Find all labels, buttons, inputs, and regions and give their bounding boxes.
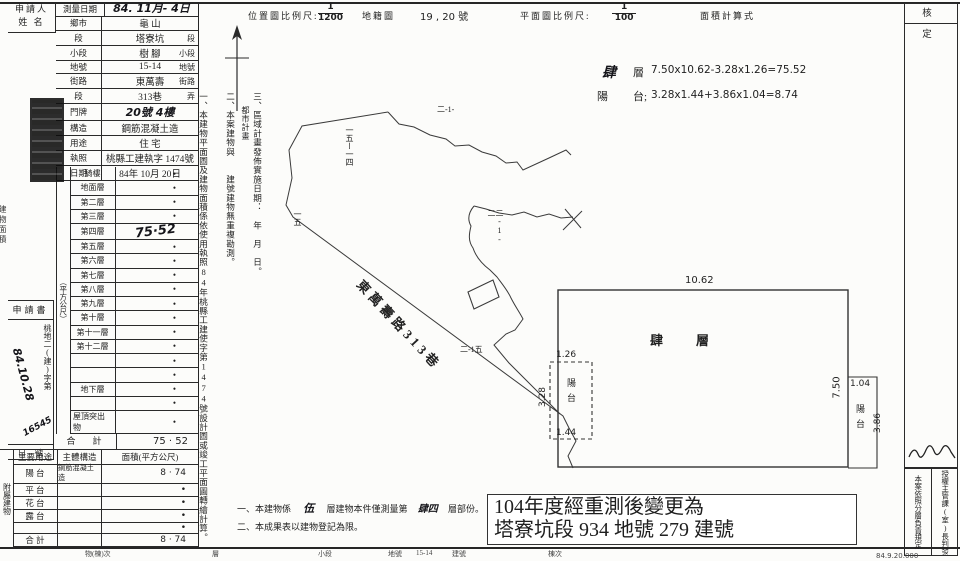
location-row: 執照桃縣工建執字 1474號: [56, 151, 198, 166]
annex-use: [13, 523, 58, 533]
row-value: 龜 山: [102, 16, 198, 30]
floor-row: 第十二層•: [70, 340, 198, 354]
floor-row: 屋頂突出物•: [70, 411, 198, 434]
dim-balcony-left-top: 1.26: [556, 350, 576, 360]
bottom-note-1-measured-hw: 肆四: [410, 504, 446, 515]
floor-area-group-label: 建物面積: [0, 205, 6, 305]
annex-header-area: 面積(平方公尺): [102, 450, 198, 464]
annex-structure: 鋼筋混凝土造: [58, 463, 102, 483]
location-row: 用途住 宅: [56, 136, 198, 151]
annex-area: 8 · 74: [102, 535, 198, 545]
floor-value: •: [116, 417, 198, 427]
floor-value-text: •: [173, 169, 176, 179]
value-text: 20號 4樓: [126, 104, 175, 120]
plan-scale-denominator: 100: [612, 14, 636, 24]
bottom-note-1-floors-hw: 伍: [293, 502, 324, 515]
floor-value: •: [116, 169, 198, 179]
resurvey-remark-box: 104年度經重測後變更為 塔寮坑段 934 地號 279 建號: [487, 494, 857, 545]
floor-label: 騎樓: [70, 167, 116, 180]
floor-value: •: [116, 341, 198, 351]
annex-structure: [58, 484, 102, 496]
floor-label: [70, 368, 116, 381]
floor-value-text: •: [173, 398, 176, 408]
value-text: 龜 山: [139, 16, 160, 30]
annex-row: 合 計8 · 74: [13, 534, 198, 547]
floor-value: •: [116, 313, 198, 323]
cadastral-map-label: 地籍圖: [362, 9, 395, 22]
dim-balcony-right-side: 3.86: [873, 413, 883, 433]
formula-floor-expression: 7.50x10.62-3.28x1.26=75.52: [651, 64, 806, 76]
value-text: 住 宅: [139, 136, 160, 150]
resurvey-remark-line2: 塔寮坑段 934 地號 279 建號: [494, 519, 850, 542]
parcel-label-2-15: 二-1五: [460, 344, 483, 355]
row-label: 街路: [56, 74, 102, 88]
floor-label: 第七層: [70, 269, 116, 282]
footer-strip: 物(棟)次層小段地號15-14建號棟次: [0, 549, 960, 561]
floor-value: •: [116, 384, 198, 394]
value-suffix: 弄: [187, 91, 195, 102]
value-text: 15-14: [139, 62, 161, 72]
location-row: 小段樹 腳小段: [56, 46, 198, 61]
row-label: 鄉市: [56, 16, 102, 30]
survey-date-label: 測量日期: [56, 3, 105, 16]
annex-use: 平 台: [13, 484, 58, 496]
floor-value-text: •: [173, 299, 176, 309]
row-value: 樹 腳小段: [102, 46, 198, 60]
floor-value-text: •: [173, 270, 176, 280]
floor-value-text: •: [173, 197, 176, 207]
floor-row: 第八層•: [70, 283, 198, 297]
authority-note-right: 授權主管課(室)長判發: [932, 469, 958, 555]
balcony-right-label: 陽台: [855, 404, 864, 448]
floor-row: 第四層75·52: [70, 224, 198, 240]
floor-row: •: [70, 397, 198, 411]
approval-signature: [907, 439, 957, 465]
footer-fragment: 物(棟)次: [85, 549, 111, 559]
annex-row: 花 台•: [13, 497, 198, 510]
location-scale-denominator: 1200: [318, 14, 343, 24]
floor-value: •: [116, 211, 198, 221]
floor-label: 第六層: [70, 254, 116, 267]
dim-balcony-left-side: 3.28: [538, 387, 548, 407]
cadastral-sheet-number: 19 , 20 號: [420, 8, 468, 23]
room-label: 肆 層: [650, 330, 719, 349]
floor-total-label: 合 計: [56, 434, 117, 449]
value-suffix: 街路: [179, 76, 195, 87]
value-suffix: 段: [187, 33, 195, 44]
official-stamp: [30, 98, 64, 182]
floor-rows: 騎樓•地面層•第二層•第三層•第四層75·52第五層•第六層•第七層•第八層•第…: [70, 167, 198, 434]
floor-row: 騎樓•: [70, 167, 198, 181]
value-text: 東萬壽: [136, 74, 165, 88]
floor-plan-drawing: [535, 270, 885, 478]
location-row: 地號15-14地號: [56, 61, 198, 74]
floor-row: 第七層•: [70, 269, 198, 283]
floor-value-text: •: [173, 417, 176, 427]
annex-structure: [58, 497, 102, 509]
floor-value: 75·52: [116, 224, 198, 239]
row-value: 15-14地號: [102, 62, 198, 72]
area-unit-label: （平方公尺）: [56, 167, 71, 434]
value-text: 鋼筋混凝土造: [121, 121, 178, 135]
floor-label: [70, 397, 116, 410]
floor-total-row: 合 計 75 · 52: [56, 434, 198, 450]
annex-area: •: [102, 485, 198, 495]
bottom-note-1c: 層建物本件僅測量第: [327, 504, 408, 514]
annex-structure: [58, 534, 102, 546]
bottom-note-1e: 層部份。: [448, 504, 484, 514]
plan-scale-fraction: 1 100: [612, 3, 636, 24]
annex-row: 平 台•: [13, 484, 198, 497]
floor-label: 屋頂突出物: [70, 411, 116, 433]
value-suffix: 地號: [179, 62, 195, 73]
floor-value: •: [116, 183, 198, 193]
floor-value-text: •: [173, 183, 176, 193]
floor-value: •: [116, 270, 198, 280]
area-calc-label: 面積計算式: [700, 9, 755, 22]
approval-header: 核 定: [904, 3, 958, 24]
annex-structure: [58, 510, 102, 522]
annex-use: 露 台: [13, 510, 58, 522]
row-value: 東萬壽街路: [102, 74, 198, 88]
floor-value: •: [116, 256, 198, 266]
bottom-note-1: 一、本建物係 伍 層建物本件僅測量第 肆四 層部份。: [237, 500, 484, 516]
floor-row: 第六層•: [70, 254, 198, 268]
footer-fragment: 小段: [318, 549, 332, 559]
floor-label: 地面層: [70, 181, 116, 194]
floor-value-text: •: [173, 242, 176, 252]
building-survey-document: 申請人 姓 名 建物面積 申請書 桃地二(建)字第 84.10.28 16545…: [0, 0, 960, 561]
floor-label: 第十二層: [70, 340, 116, 353]
parcel-label-2-1-2: 二-1-二: [487, 209, 503, 247]
floor-value-text: •: [173, 313, 176, 323]
row-value: 313巷弄: [102, 89, 198, 103]
floor-label: 第九層: [70, 297, 116, 310]
parcel-label-15: 一五: [293, 210, 301, 230]
floor-total-value: 75 · 52: [117, 434, 198, 449]
formula-balcony-word: 台;: [633, 88, 647, 104]
location-rows: 鄉市龜 山段塔寮坑段小段樹 腳小段地號15-14地號街路東萬壽街路段313巷弄門…: [56, 16, 198, 167]
annex-area: 8 · 74: [102, 468, 198, 478]
location-scale-label: 位置圖比例尺:: [248, 9, 319, 22]
location-row: 段塔寮坑段: [56, 31, 198, 46]
plan-scale-label: 平面圖比例尺:: [520, 9, 591, 22]
annex-use: 陽 台: [13, 463, 58, 483]
row-value: 桃縣工建執字 1474號: [102, 151, 198, 165]
footer-fragment: 15-14: [416, 549, 432, 557]
note-1: 一、本建物平面圖及建物面積係依使用執照84年桃縣工建使字第1474號設計圖或竣工…: [199, 92, 208, 550]
floor-row: 第十層•: [70, 311, 198, 325]
balcony-left-label: 陽台: [566, 378, 575, 422]
footer-fragment: 層: [212, 549, 219, 559]
floor-label: 第三層: [70, 210, 116, 223]
annex-structure: [58, 523, 102, 533]
annex-header-structure: 主體構造: [58, 450, 102, 464]
value-text: 樹 腳: [139, 46, 160, 60]
floor-value-text: •: [173, 256, 176, 266]
location-row: 構造鋼筋混凝土造: [56, 121, 198, 136]
row-label: 段: [56, 31, 102, 45]
annex-header-use: 主要用途: [13, 450, 58, 464]
floor-label: 第二層: [70, 196, 116, 209]
floor-label: 地下層: [70, 383, 116, 396]
floor-value: •: [116, 370, 198, 380]
floor-value: •: [116, 356, 198, 366]
value-text: 塔寮坑: [136, 31, 165, 45]
floor-value: •: [116, 197, 198, 207]
floor-value-text: •: [173, 356, 176, 366]
floor-label: 第五層: [70, 240, 116, 253]
floor-row: 第三層•: [70, 210, 198, 224]
floor-row: 地面層•: [70, 181, 198, 195]
row-value: 住 宅: [102, 136, 198, 150]
authority-note-left: 本案依照分層負責規定: [905, 469, 932, 555]
parcel-label-15-14: 一五ー一四: [345, 126, 353, 172]
row-value: 20號 4樓: [102, 104, 198, 120]
building-data-table: 測量日期 84. 11月- 4日 鄉市龜 山段塔寮坑段小段樹 腳小段地號15-1…: [8, 3, 199, 547]
annex-area: •: [102, 523, 198, 533]
floor-value-text: •: [173, 327, 176, 337]
value-text: 桃縣工建執字 1474號: [106, 151, 194, 165]
floor-row: 第二層•: [70, 196, 198, 210]
floor-value-text: •: [173, 370, 176, 380]
annex-row: 露 台•: [13, 510, 198, 523]
floor-value: •: [116, 284, 198, 294]
survey-date-value: 84. 11月- 4日: [105, 3, 198, 16]
dim-right: 7.50: [832, 376, 843, 398]
floor-value: •: [116, 299, 198, 309]
row-value: 鋼筋混凝土造: [102, 121, 198, 135]
floor-row: •: [70, 354, 198, 368]
annex-area: •: [102, 498, 198, 508]
bottom-note-1a: 一、本建物係: [237, 504, 291, 514]
value-text: 313巷: [138, 89, 162, 103]
bottom-note-2: 二、本成果表以建物登記為限。: [237, 520, 363, 533]
floor-label: 第八層: [70, 283, 116, 296]
footer-fragment: 建號: [452, 549, 466, 559]
note-2: 二、本案建物與 建號建物無重複勘測。: [226, 92, 235, 392]
floor-value-text: 75·52: [134, 222, 177, 242]
floor-label: [70, 354, 116, 367]
annex-row: 陽 台鋼筋混凝土造8 · 74: [13, 463, 198, 484]
dim-balcony-right-top: 1.04: [850, 379, 870, 389]
parcel-label-2-1: 二-1-: [437, 104, 454, 115]
floor-label: 第十層: [70, 311, 116, 324]
row-value: 塔寮坑段: [102, 31, 198, 45]
floor-value-text: •: [173, 284, 176, 294]
formula-balcony-name: 陽: [597, 88, 608, 104]
resurvey-remark-line1: 104年度經重測後變更為: [494, 496, 850, 519]
floor-label: 第十一層: [70, 326, 116, 339]
formula-balcony-expression: 3.28x1.44+3.86x1.04=8.74: [651, 89, 798, 101]
formula-floor-word: 層: [633, 64, 644, 80]
location-row: 段313巷弄: [56, 89, 198, 104]
annex-use: 花 台: [13, 497, 58, 509]
row-label: 地號: [56, 61, 102, 73]
location-row: 鄉市龜 山: [56, 16, 198, 31]
floor-value: •: [116, 242, 198, 252]
annex-use: 合 計: [13, 534, 58, 546]
floor-value-text: •: [173, 384, 176, 394]
row-label: 小段: [56, 46, 102, 60]
floor-label: 第四層: [70, 224, 116, 239]
location-row: 街路東萬壽街路: [56, 74, 198, 89]
formula-floor-name: 肆: [602, 62, 616, 82]
authority-note-box: 本案依照分層負責規定 授權主管課(室)長判發: [904, 468, 958, 556]
annex-area: •: [102, 511, 198, 521]
survey-date-row: 測量日期 84. 11月- 4日: [56, 3, 198, 17]
floor-row: 地下層•: [70, 383, 198, 397]
floor-row: •: [70, 368, 198, 382]
note-3-sidecol: 都市計畫: [241, 106, 249, 146]
footer-fragment: 地號: [388, 549, 402, 559]
location-row: 門牌20號 4樓: [56, 104, 198, 121]
dim-top: 10.62: [685, 275, 714, 286]
floor-row: 第五層•: [70, 240, 198, 254]
floor-value: •: [116, 398, 198, 408]
floor-value-text: •: [173, 211, 176, 221]
annex-rows: 陽 台鋼筋混凝土造8 · 74平 台•花 台•露 台••合 計8 · 74: [13, 463, 198, 547]
floor-value-text: •: [173, 341, 176, 351]
approval-box: [904, 24, 958, 468]
annex-group-label: 附屬建物: [0, 449, 14, 548]
location-scale-fraction: 1 1200: [318, 3, 343, 24]
dim-balcony-left-bottom: 1.44: [556, 428, 576, 438]
annex-row: •: [13, 523, 198, 534]
footer-fragment: 棟次: [548, 549, 562, 559]
floor-row: 第九層•: [70, 297, 198, 311]
floor-value: •: [116, 327, 198, 337]
floor-row: 第十一層•: [70, 326, 198, 340]
value-suffix: 小段: [179, 48, 195, 59]
